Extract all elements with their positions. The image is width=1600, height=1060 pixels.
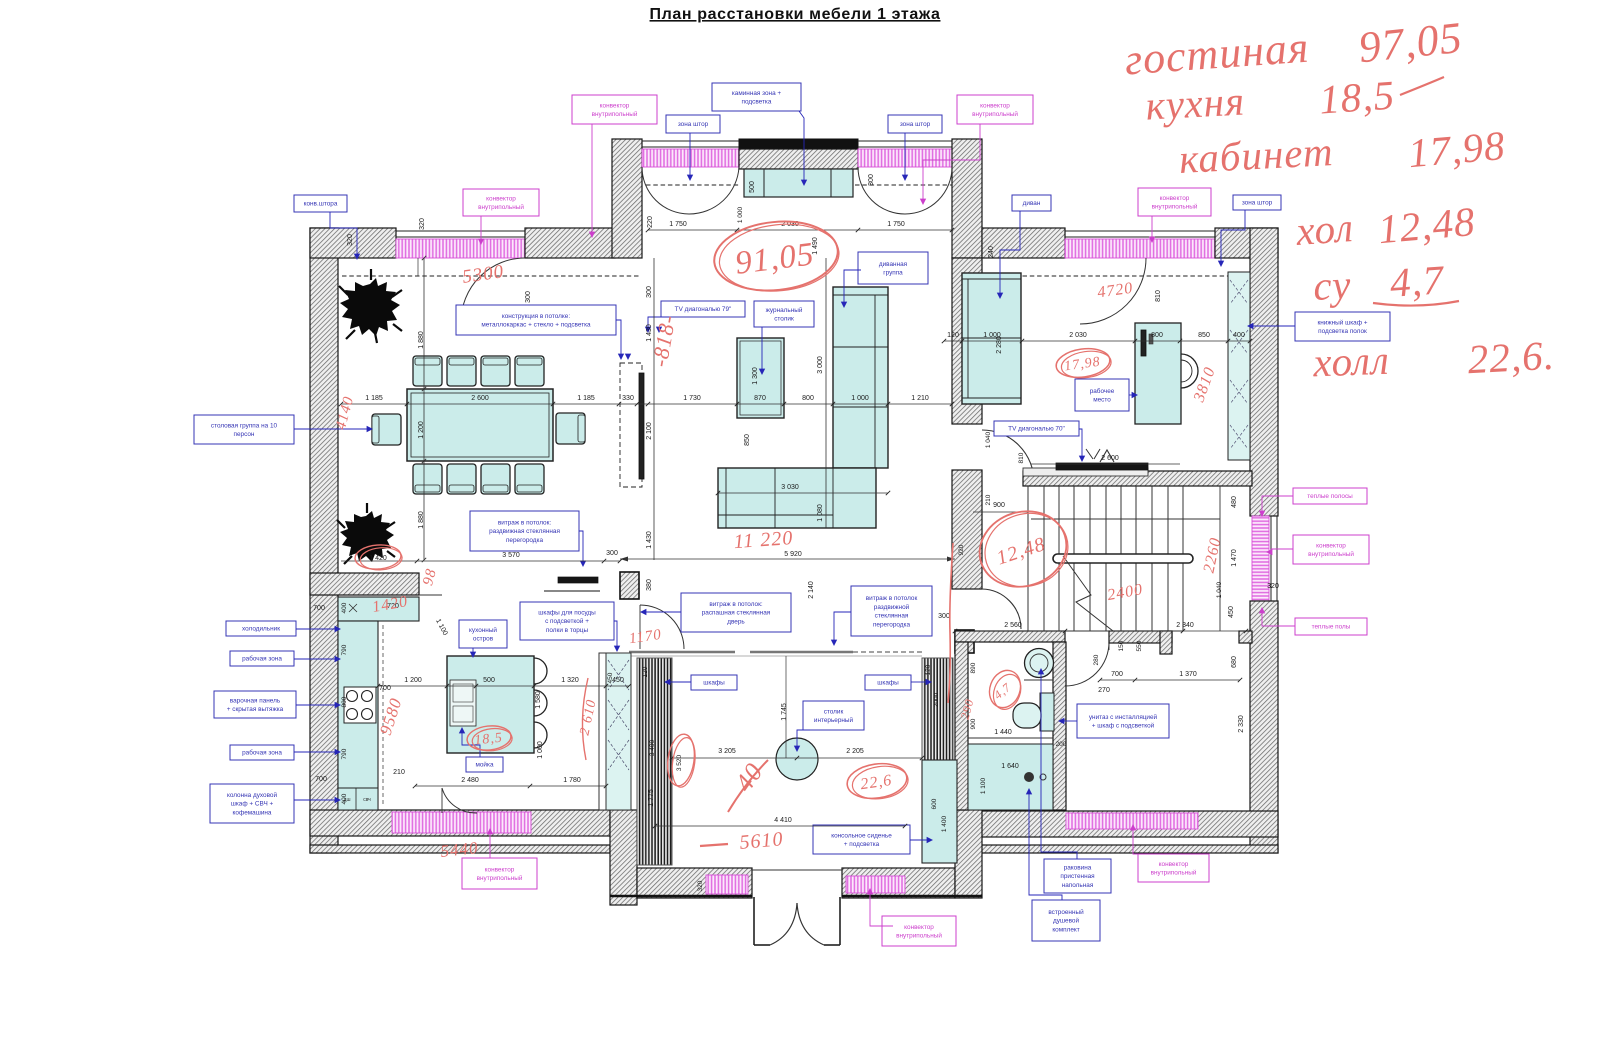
- svg-text:конвектор: конвектор: [486, 195, 516, 202]
- svg-text:500: 500: [483, 677, 495, 684]
- svg-text:1 580: 1 580: [535, 691, 542, 709]
- svg-text:группа: группа: [883, 270, 903, 277]
- svg-text:внутрипольный: внутрипольный: [1308, 550, 1354, 558]
- svg-text:5440: 5440: [440, 838, 480, 861]
- svg-text:11 220: 11 220: [733, 527, 794, 553]
- svg-text:журнальный: журнальный: [766, 306, 803, 314]
- svg-text:1 040: 1 040: [985, 431, 992, 448]
- svg-text:зона штор: зона штор: [900, 121, 931, 128]
- svg-text:2 100: 2 100: [646, 422, 653, 440]
- svg-text:витраж в потолок:: витраж в потолок:: [498, 519, 552, 526]
- svg-text:270: 270: [1098, 687, 1110, 694]
- svg-text:380: 380: [646, 579, 653, 591]
- svg-text:280: 280: [1093, 654, 1100, 665]
- svg-text:План расстановки мебели 1 этаж: План расстановки мебели 1 этажа: [650, 6, 941, 23]
- svg-text:4 410: 4 410: [774, 817, 792, 824]
- svg-text:место: место: [1093, 397, 1111, 404]
- svg-text:3 205: 3 205: [718, 748, 736, 755]
- svg-text:раздвижная стеклянная: раздвижная стеклянная: [489, 528, 560, 535]
- svg-text:1 420: 1 420: [369, 555, 387, 562]
- svg-text:1 320: 1 320: [561, 677, 579, 684]
- svg-text:1 100: 1 100: [980, 777, 987, 794]
- svg-text:320: 320: [1267, 583, 1279, 590]
- svg-text:320: 320: [697, 880, 704, 891]
- svg-text:конструкция в потолке:: конструкция в потолке:: [502, 313, 570, 320]
- svg-text:1 640: 1 640: [1001, 763, 1019, 770]
- svg-text:300: 300: [525, 291, 532, 303]
- svg-text:1 440: 1 440: [994, 729, 1012, 736]
- svg-text:800: 800: [802, 395, 814, 402]
- svg-text:полки в торцы: полки в торцы: [546, 627, 589, 634]
- svg-text:680: 680: [1231, 656, 1238, 668]
- svg-text:колонна духовой: колонна духовой: [227, 791, 278, 799]
- svg-text:перегородка: перегородка: [873, 621, 911, 628]
- svg-text:пристенная: пристенная: [1060, 873, 1095, 880]
- svg-text:2 480: 2 480: [461, 777, 479, 784]
- svg-text:подсветка полок: подсветка полок: [1318, 328, 1367, 335]
- svg-text:920: 920: [958, 544, 965, 555]
- svg-text:встроенный: встроенный: [1048, 908, 1084, 916]
- svg-text:кабинет: кабинет: [1178, 128, 1335, 182]
- svg-text:1 400: 1 400: [941, 815, 948, 832]
- svg-text:850: 850: [744, 434, 751, 446]
- svg-text:душевой: душевой: [1053, 917, 1079, 925]
- svg-text:витраж в потолок:: витраж в потолок:: [709, 601, 763, 608]
- svg-text:внутрипольный: внутрипольный: [477, 874, 523, 882]
- svg-text:2 140: 2 140: [808, 581, 815, 599]
- svg-text:400: 400: [341, 602, 348, 613]
- svg-text:400: 400: [1233, 332, 1245, 339]
- svg-text:металлокаркас + стекло + подсв: металлокаркас + стекло + подсветка: [481, 322, 591, 329]
- svg-text:конв.штора: конв.штора: [304, 201, 338, 208]
- svg-text:стеклянная: стеклянная: [875, 613, 909, 620]
- svg-text:остров: остров: [473, 636, 494, 643]
- svg-text:870: 870: [754, 395, 766, 402]
- svg-text:шкафы: шкафы: [877, 680, 899, 687]
- svg-text:с подсветкой +: с подсветкой +: [545, 617, 589, 625]
- svg-text:конвектор: конвектор: [1316, 542, 1346, 549]
- svg-text:150: 150: [1118, 640, 1125, 651]
- svg-text:210: 210: [393, 769, 405, 776]
- svg-text:раздвижной: раздвижной: [874, 603, 910, 611]
- svg-text:3 030: 3 030: [781, 484, 799, 491]
- svg-text:подсветка: подсветка: [742, 99, 772, 106]
- svg-text:шкаф + СВЧ +: шкаф + СВЧ +: [231, 801, 274, 808]
- svg-text:850: 850: [1198, 332, 1210, 339]
- svg-text:витраж в потолок: витраж в потолок: [866, 595, 918, 602]
- svg-text:унитаз с инсталляцией: унитаз с инсталляцией: [1089, 713, 1158, 721]
- svg-text:1 750: 1 750: [669, 221, 687, 228]
- svg-text:1 000: 1 000: [737, 206, 744, 223]
- svg-text:варочная панель: варочная панель: [230, 697, 281, 704]
- svg-text:TV диагональю 70": TV диагональю 70": [1008, 426, 1065, 433]
- svg-text:1 185: 1 185: [577, 395, 595, 402]
- svg-text:3 000: 3 000: [817, 356, 824, 374]
- svg-text:18,5: 18,5: [1318, 71, 1397, 122]
- svg-text:120: 120: [947, 332, 959, 339]
- svg-text:3 570: 3 570: [502, 552, 520, 559]
- svg-text:450: 450: [607, 672, 614, 683]
- svg-text:4,7: 4,7: [1388, 256, 1446, 306]
- svg-text:зона штор: зона штор: [1242, 200, 1273, 207]
- svg-text:12,48: 12,48: [1376, 198, 1477, 252]
- svg-text:550: 550: [1136, 640, 1143, 651]
- svg-text:1 000: 1 000: [851, 395, 869, 402]
- svg-text:+ скрытая вытяжка: + скрытая вытяжка: [227, 706, 284, 713]
- svg-text:2 600: 2 600: [1101, 455, 1119, 462]
- svg-text:1 880: 1 880: [418, 331, 425, 349]
- svg-text:1 780: 1 780: [563, 777, 581, 784]
- svg-text:зона штор: зона штор: [678, 121, 709, 128]
- svg-text:рабочая зона: рабочая зона: [242, 655, 282, 663]
- svg-text:1 185: 1 185: [365, 395, 383, 402]
- svg-text:5610: 5610: [739, 828, 785, 854]
- svg-text:шкафы: шкафы: [703, 680, 725, 687]
- svg-text:300: 300: [868, 174, 875, 186]
- svg-text:120: 120: [925, 664, 932, 675]
- svg-text:800: 800: [341, 696, 348, 707]
- svg-text:1 730: 1 730: [683, 395, 701, 402]
- svg-text:рабочая зона: рабочая зона: [242, 749, 282, 757]
- svg-text:700: 700: [1111, 671, 1123, 678]
- svg-text:2 560: 2 560: [1004, 622, 1022, 629]
- svg-text:кухонный: кухонный: [469, 626, 497, 634]
- svg-text:конвектор: конвектор: [904, 924, 934, 931]
- svg-text:2 600: 2 600: [471, 395, 489, 402]
- svg-text:1 080: 1 080: [817, 504, 824, 522]
- svg-text:600: 600: [931, 798, 938, 809]
- svg-text:500: 500: [749, 181, 756, 193]
- svg-text:напольная: напольная: [1062, 882, 1094, 889]
- svg-text:3 400: 3 400: [649, 739, 656, 756]
- svg-text:комплект: комплект: [1052, 927, 1079, 934]
- svg-text:1 300: 1 300: [752, 367, 759, 385]
- svg-text:1 200: 1 200: [418, 421, 425, 439]
- svg-text:810: 810: [1018, 452, 1025, 463]
- svg-text:200: 200: [1056, 741, 1067, 748]
- svg-text:внутрипольный: внутрипольный: [478, 203, 524, 211]
- svg-text:2 340: 2 340: [1176, 622, 1194, 629]
- svg-text:22,6.: 22,6.: [1467, 332, 1556, 382]
- svg-text:2 205: 2 205: [846, 748, 864, 755]
- svg-text:2 280: 2 280: [996, 336, 1003, 354]
- svg-text:220: 220: [647, 216, 654, 228]
- svg-text:900: 900: [993, 502, 1005, 509]
- svg-text:790: 790: [341, 748, 348, 759]
- svg-text:1 370: 1 370: [1179, 671, 1197, 678]
- svg-text:17,98: 17,98: [1406, 122, 1507, 176]
- svg-text:3 520: 3 520: [676, 754, 683, 771]
- svg-text:конвектор: конвектор: [980, 102, 1010, 109]
- svg-text:диван: диван: [1023, 200, 1041, 207]
- svg-text:1 775: 1 775: [648, 789, 655, 807]
- svg-text:холодильник: холодильник: [242, 626, 280, 633]
- svg-text:1 040: 1 040: [1216, 581, 1223, 598]
- svg-text:столик: столик: [824, 708, 844, 715]
- svg-text:внутрипольный: внутрипольный: [592, 110, 638, 118]
- svg-text:перегородка: перегородка: [506, 537, 544, 544]
- svg-text:дверь: дверь: [727, 619, 745, 626]
- svg-text:480: 480: [1231, 496, 1238, 508]
- svg-text:2 030: 2 030: [1069, 332, 1087, 339]
- svg-text:320: 320: [347, 234, 354, 246]
- svg-text:персон: персон: [234, 431, 255, 438]
- svg-text:450: 450: [1228, 606, 1235, 618]
- svg-text:1 880: 1 880: [418, 511, 425, 529]
- svg-text:1 745: 1 745: [781, 703, 788, 721]
- svg-text:700: 700: [313, 605, 325, 612]
- svg-text:890: 890: [970, 662, 977, 673]
- svg-text:810: 810: [1155, 290, 1162, 302]
- svg-text:свч: свч: [363, 797, 371, 803]
- svg-text:+ подсветка: + подсветка: [844, 841, 880, 848]
- svg-text:1 750: 1 750: [887, 221, 905, 228]
- svg-text:800: 800: [1151, 332, 1163, 339]
- svg-text:120: 120: [642, 666, 649, 677]
- svg-text:консольное сиденье: консольное сиденье: [831, 832, 892, 839]
- svg-text:конвектор: конвектор: [1160, 195, 1190, 202]
- svg-text:столик: столик: [774, 316, 794, 323]
- svg-text:210: 210: [985, 494, 992, 505]
- svg-text:2000: 2000: [933, 692, 940, 707]
- svg-text:320: 320: [419, 218, 426, 230]
- svg-text:су: су: [1312, 261, 1352, 309]
- svg-text:раковина: раковина: [1064, 864, 1092, 871]
- svg-text:1 210: 1 210: [911, 395, 929, 402]
- svg-text:700: 700: [315, 776, 327, 783]
- svg-text:790: 790: [341, 644, 348, 655]
- svg-text:диванная: диванная: [879, 261, 908, 268]
- svg-text:рабочее: рабочее: [1090, 387, 1115, 395]
- svg-text:внутрипольный: внутрипольный: [1152, 203, 1198, 211]
- svg-text:внутрипольный: внутрипольный: [896, 932, 942, 940]
- svg-text:400: 400: [341, 793, 348, 804]
- svg-text:1 000: 1 000: [537, 741, 544, 759]
- svg-text:мойка: мойка: [475, 761, 493, 769]
- svg-text:холл: холл: [1312, 337, 1391, 386]
- svg-text:распашная стеклянная: распашная стеклянная: [702, 610, 771, 617]
- svg-text:300: 300: [938, 613, 950, 620]
- svg-text:хол: хол: [1294, 204, 1356, 254]
- svg-text:конвектор: конвектор: [485, 866, 515, 873]
- svg-text:1 470: 1 470: [1231, 549, 1238, 567]
- svg-text:300: 300: [606, 550, 618, 557]
- svg-text:TV диагональю 79": TV диагональю 79": [675, 306, 732, 313]
- svg-text:кофемашина: кофемашина: [233, 810, 272, 817]
- svg-text:240: 240: [988, 246, 995, 258]
- svg-text:столовая группа на 10: столовая группа на 10: [211, 422, 278, 429]
- svg-text:конвектор: конвектор: [1159, 861, 1189, 868]
- svg-text:каминная зона +: каминная зона +: [732, 90, 782, 97]
- svg-text:+ шкаф с подсветкой: + шкаф с подсветкой: [1092, 722, 1155, 730]
- svg-text:2 330: 2 330: [1238, 715, 1245, 733]
- svg-text:330: 330: [622, 395, 634, 402]
- svg-text:18,5: 18,5: [474, 731, 504, 749]
- svg-text:300: 300: [646, 286, 653, 298]
- svg-text:конвектор: конвектор: [600, 102, 630, 109]
- svg-text:шкафы для посуды: шкафы для посуды: [538, 609, 596, 616]
- svg-text:теплые полосы: теплые полосы: [1307, 493, 1353, 500]
- svg-text:5 920: 5 920: [784, 551, 802, 558]
- svg-text:теплые полы: теплые полы: [1312, 624, 1351, 631]
- svg-text:интерьерный: интерьерный: [814, 716, 854, 724]
- svg-text:кухня: кухня: [1144, 77, 1246, 128]
- svg-text:внутрипольный: внутрипольный: [1151, 869, 1197, 877]
- svg-text:внутрипольный: внутрипольный: [972, 110, 1018, 118]
- svg-text:книжный шкаф +: книжный шкаф +: [1317, 318, 1367, 326]
- svg-text:1 430: 1 430: [646, 531, 653, 549]
- svg-text:1 200: 1 200: [404, 677, 422, 684]
